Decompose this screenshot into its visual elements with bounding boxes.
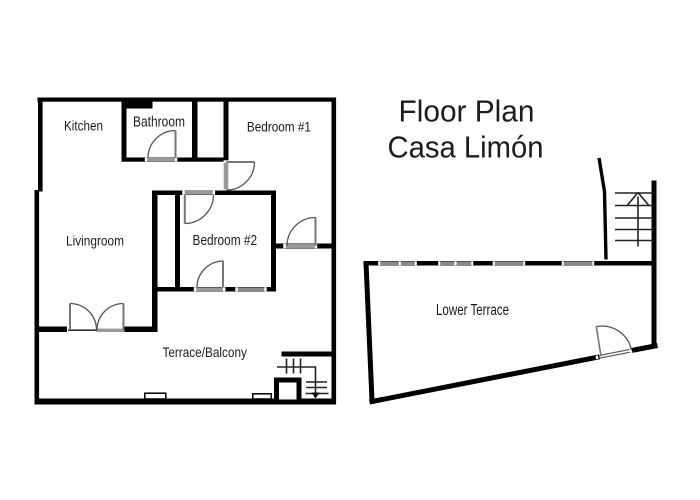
svg-text:Bedroom #1: Bedroom #1 — [247, 119, 311, 135]
svg-text:Casa Limón: Casa Limón — [388, 130, 544, 165]
svg-text:Terrace/Balcony: Terrace/Balcony — [162, 344, 247, 360]
svg-text:Bedroom #2: Bedroom #2 — [193, 233, 258, 249]
svg-text:Bathroom: Bathroom — [133, 115, 185, 131]
svg-text:Floor Plan: Floor Plan — [399, 94, 535, 129]
svg-text:Livingroom: Livingroom — [66, 233, 124, 249]
svg-text:Lower Terrace: Lower Terrace — [436, 302, 509, 319]
svg-text:Kitchen: Kitchen — [64, 118, 103, 134]
